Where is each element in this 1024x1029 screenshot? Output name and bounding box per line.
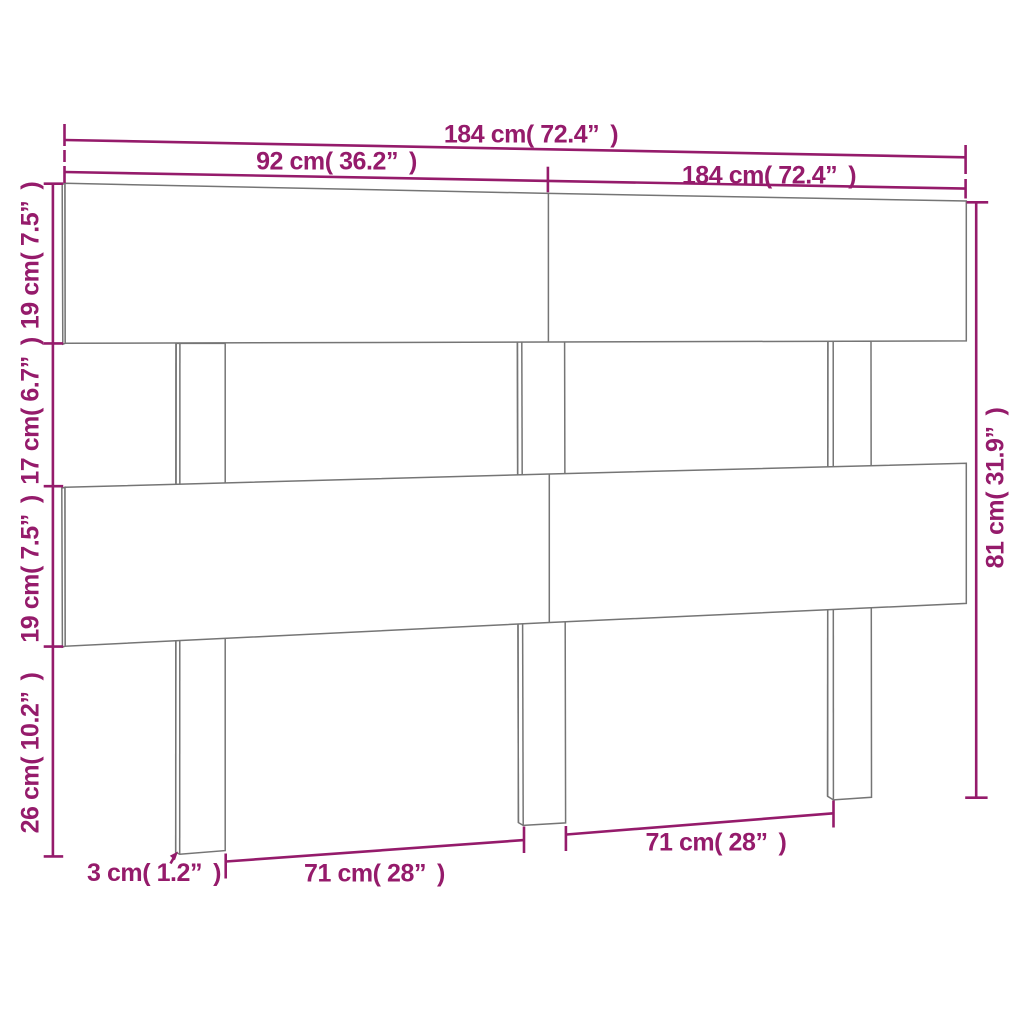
svg-text:19 cm( 7.5” ): 19 cm( 7.5” ) — [17, 495, 45, 643]
svg-text:26 cm( 10.2” ): 26 cm( 10.2” ) — [17, 672, 45, 833]
svg-text:184 cm( 72.4” ): 184 cm( 72.4” ) — [444, 121, 618, 149]
svg-text:71 cm( 28” ): 71 cm( 28” ) — [646, 829, 787, 857]
svg-text:92 cm( 36.2” ): 92 cm( 36.2” ) — [256, 148, 417, 176]
svg-text:19 cm( 7.5” ): 19 cm( 7.5” ) — [17, 182, 45, 330]
svg-text:3 cm( 1.2” ): 3 cm( 1.2” ) — [87, 859, 221, 887]
svg-text:71 cm( 28” ): 71 cm( 28” ) — [304, 860, 445, 888]
svg-text:17 cm( 6.7” ): 17 cm( 6.7” ) — [17, 337, 45, 485]
svg-text:81 cm( 31.9” ): 81 cm( 31.9” ) — [982, 407, 1010, 568]
svg-text:184 cm( 72.4” ): 184 cm( 72.4” ) — [682, 162, 856, 190]
